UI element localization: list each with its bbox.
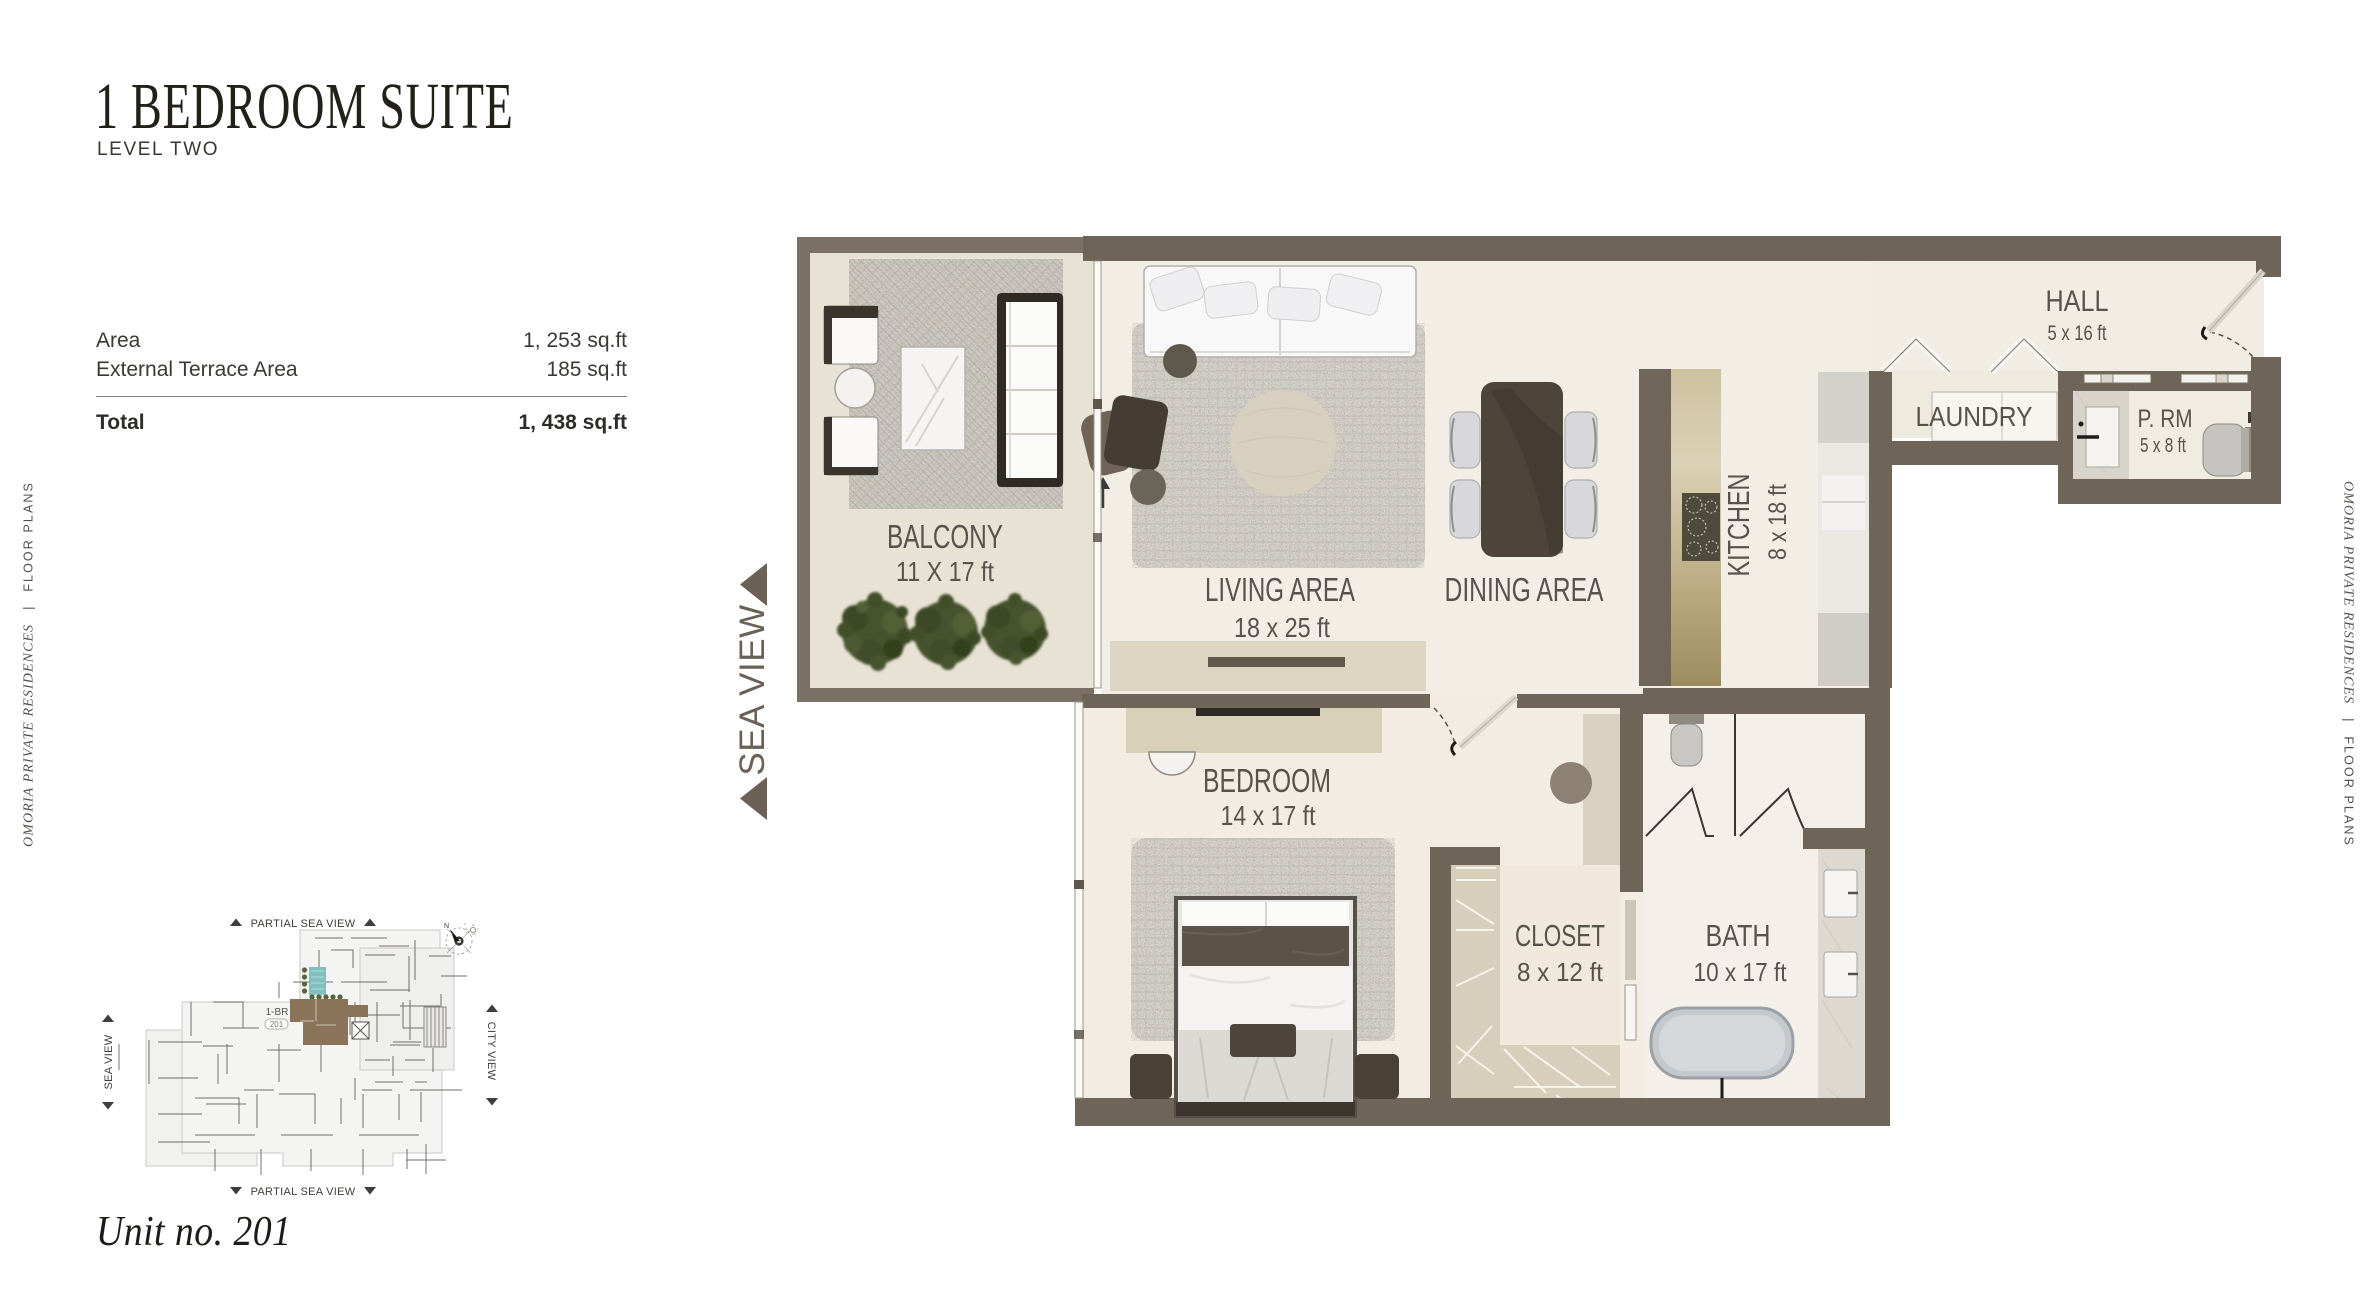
svg-text:201: 201	[270, 1020, 284, 1029]
svg-text:SEA VIEW: SEA VIEW	[103, 1034, 115, 1089]
svg-text:N: N	[444, 923, 449, 930]
svg-text:PARTIAL SEA VIEW: PARTIAL SEA VIEW	[251, 918, 356, 930]
svg-text:CITY VIEW: CITY VIEW	[485, 1022, 497, 1081]
svg-text:1-BR: 1-BR	[266, 1007, 289, 1018]
svg-text:PARTIAL SEA VIEW: PARTIAL SEA VIEW	[251, 1186, 356, 1198]
